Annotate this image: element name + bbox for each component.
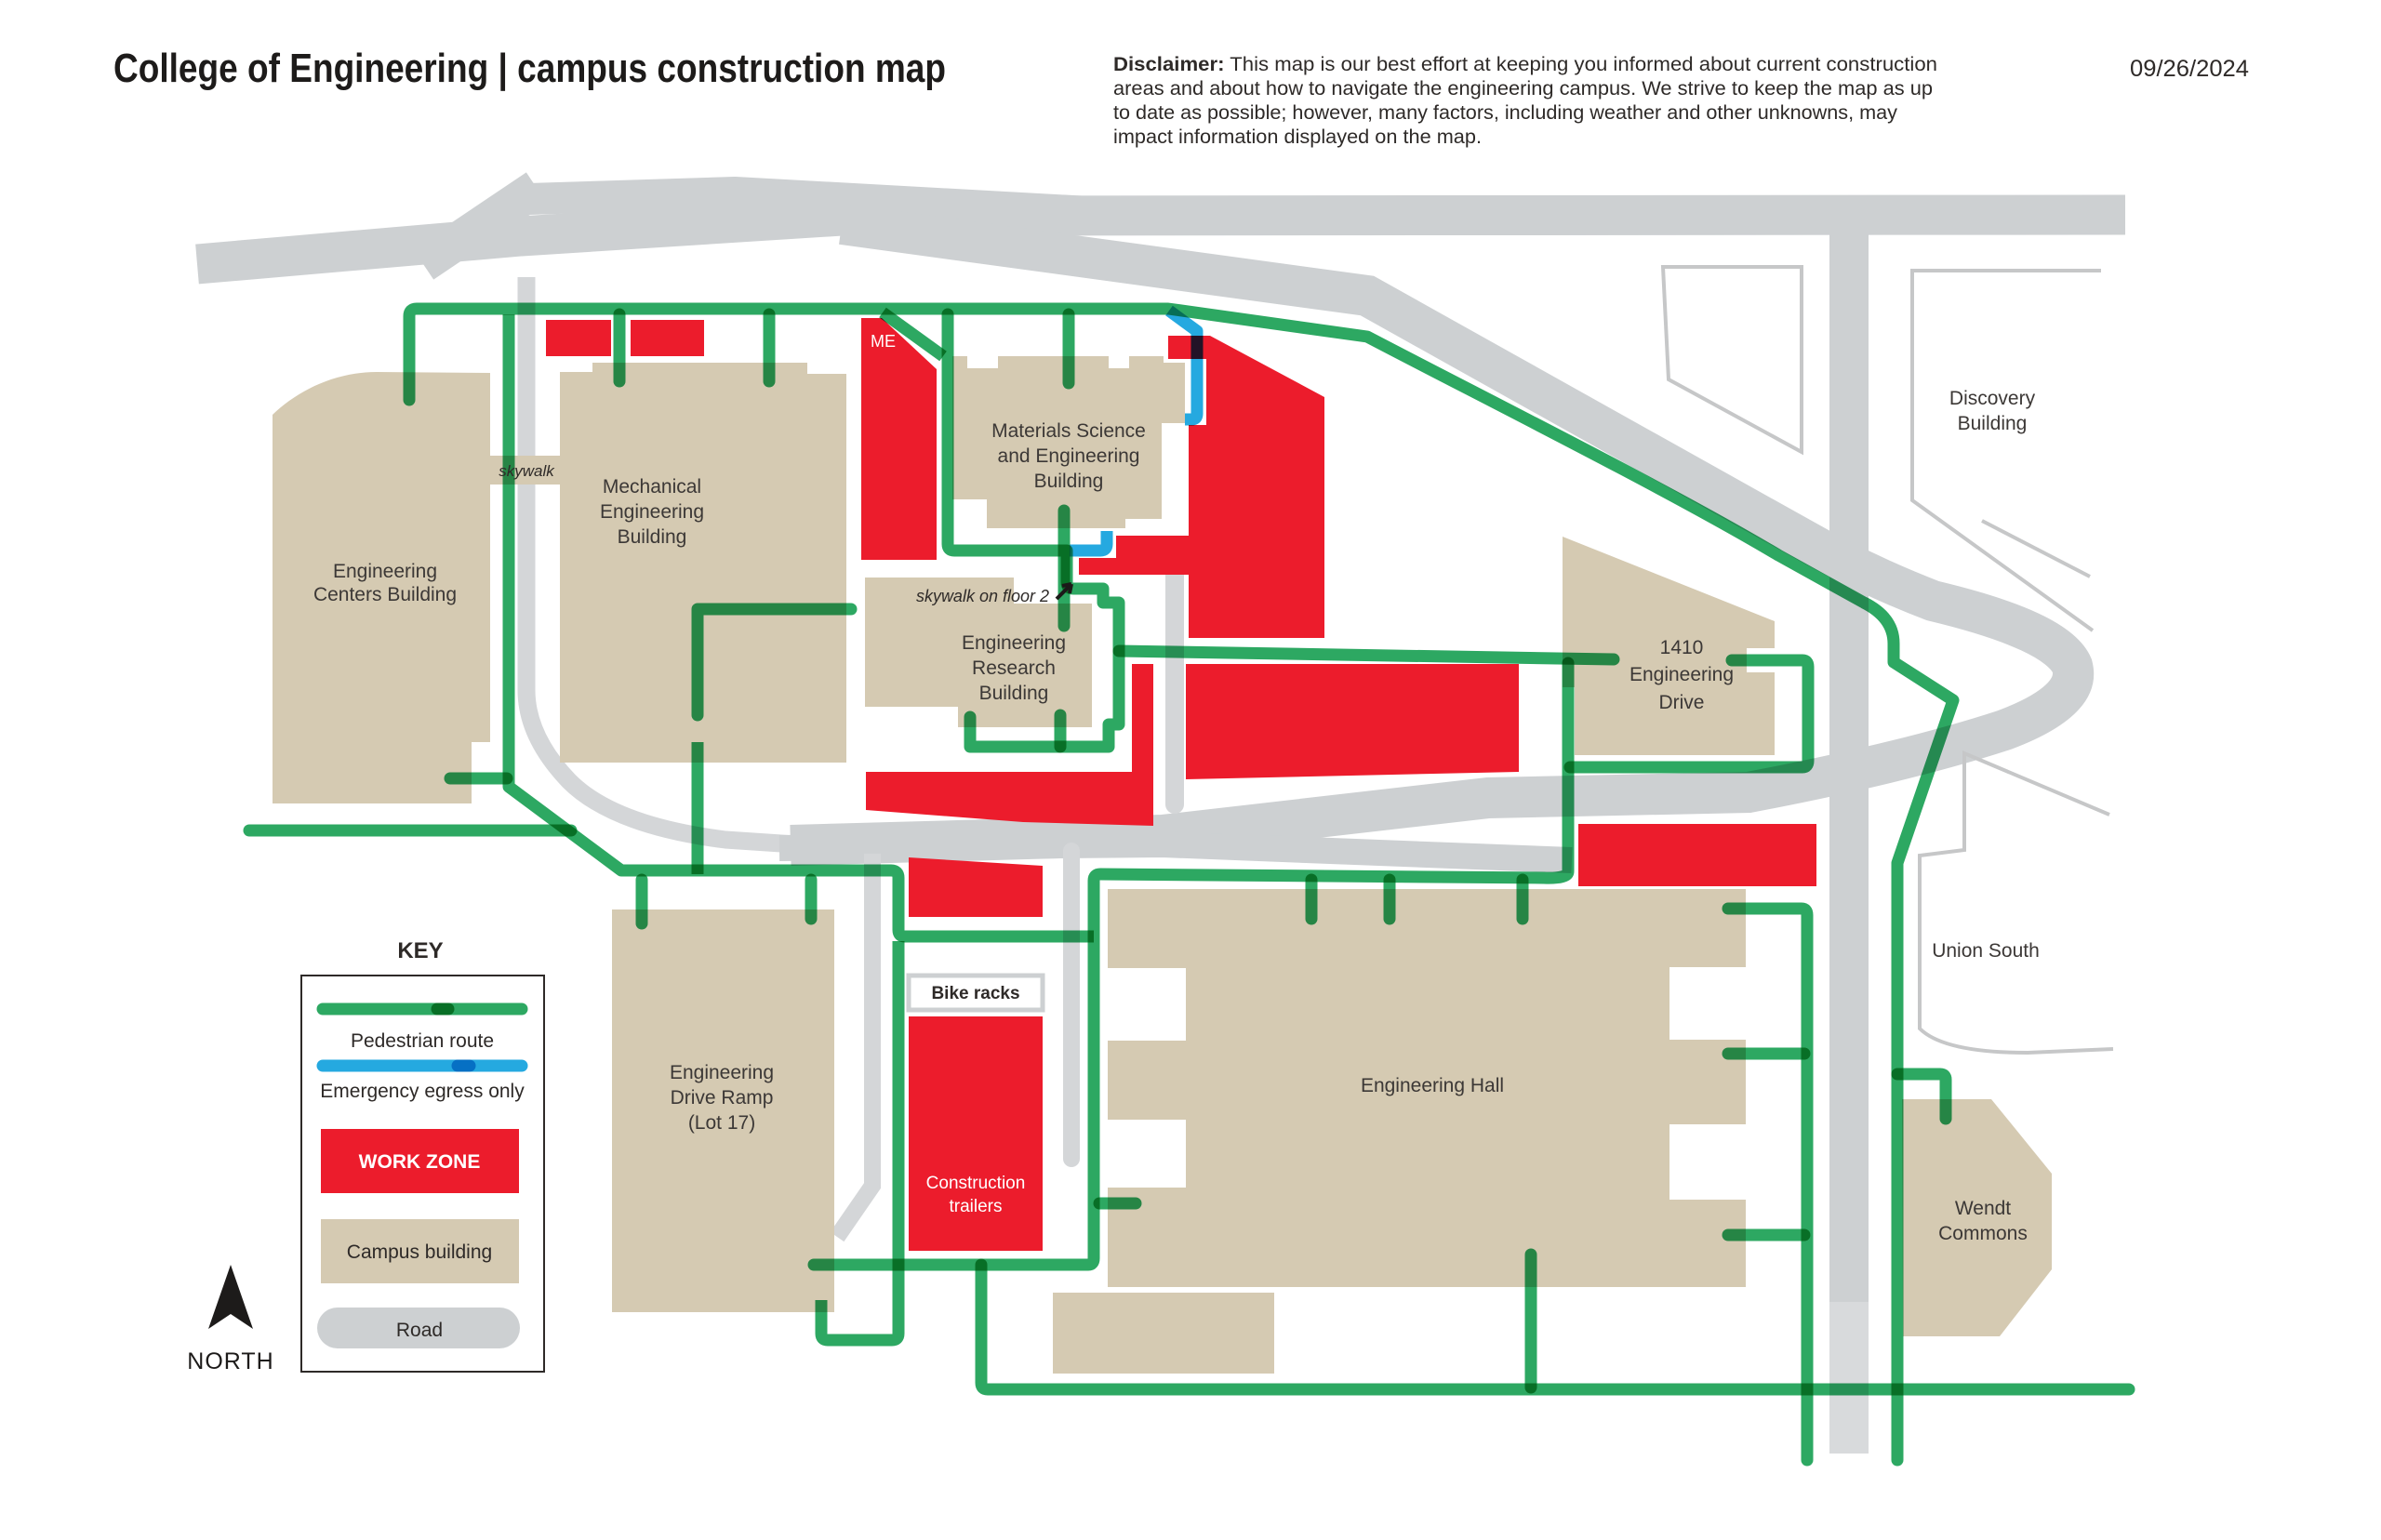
- svg-text:Research: Research: [972, 657, 1056, 679]
- svg-text:Engineering: Engineering: [600, 501, 704, 523]
- svg-text:Engineering: Engineering: [962, 632, 1066, 654]
- svg-text:Building: Building: [1958, 413, 2028, 434]
- svg-text:Building: Building: [618, 526, 687, 548]
- svg-text:Engineering: Engineering: [1629, 664, 1734, 685]
- svg-text:WORK ZONE: WORK ZONE: [359, 1151, 481, 1173]
- svg-text:NORTH: NORTH: [187, 1348, 273, 1374]
- svg-text:Building: Building: [979, 683, 1049, 704]
- svg-text:Campus building: Campus building: [347, 1241, 492, 1263]
- svg-text:Building: Building: [1034, 471, 1104, 492]
- svg-text:1410: 1410: [1660, 637, 1704, 658]
- svg-text:skywalk: skywalk: [499, 462, 555, 480]
- svg-text:(Lot 17): (Lot 17): [688, 1112, 755, 1134]
- svg-text:Road: Road: [396, 1320, 443, 1341]
- svg-text:Mechanical: Mechanical: [603, 476, 701, 498]
- svg-text:Engineering: Engineering: [670, 1062, 774, 1083]
- svg-text:Materials Science: Materials Science: [991, 420, 1146, 442]
- svg-text:09/26/2024: 09/26/2024: [2130, 56, 2249, 82]
- svg-text:Discovery: Discovery: [1949, 388, 2036, 409]
- svg-text:trailers: trailers: [949, 1197, 1002, 1216]
- svg-text:Centers Building: Centers Building: [313, 584, 457, 605]
- svg-text:Pedestrian route: Pedestrian route: [351, 1030, 494, 1052]
- svg-text:Engineering: Engineering: [333, 561, 437, 582]
- svg-text:KEY: KEY: [397, 938, 443, 963]
- svg-text:and Engineering: and Engineering: [998, 445, 1140, 467]
- svg-text:Engineering Hall: Engineering Hall: [1361, 1075, 1504, 1096]
- svg-text:Union South: Union South: [1932, 940, 2040, 962]
- svg-text:Wendt: Wendt: [1955, 1198, 2011, 1219]
- svg-text:skywalk on floor 2: skywalk on floor 2: [916, 587, 1049, 605]
- svg-text:impact information displayed o: impact information displayed on the map.: [1113, 126, 1482, 148]
- svg-text:Bike racks: Bike racks: [931, 984, 1019, 1003]
- svg-text:to date as possible; however,: to date as possible; however, many facto…: [1113, 102, 1898, 124]
- svg-text:Disclaimer: This map is our be: Disclaimer: This map is our best effort …: [1113, 54, 1937, 75]
- svg-text:Commons: Commons: [1938, 1223, 2028, 1244]
- svg-text:College of Engineering | campu: College of Engineering | campus construc…: [113, 46, 946, 92]
- svg-text:areas and about how to navigat: areas and about how to navigate the engi…: [1113, 78, 1933, 100]
- svg-text:Emergency egress only: Emergency egress only: [320, 1081, 525, 1102]
- svg-text:Drive: Drive: [1658, 692, 1704, 713]
- svg-text:ME: ME: [871, 332, 896, 351]
- svg-text:Drive Ramp: Drive Ramp: [671, 1087, 774, 1109]
- svg-text:Construction: Construction: [926, 1174, 1026, 1193]
